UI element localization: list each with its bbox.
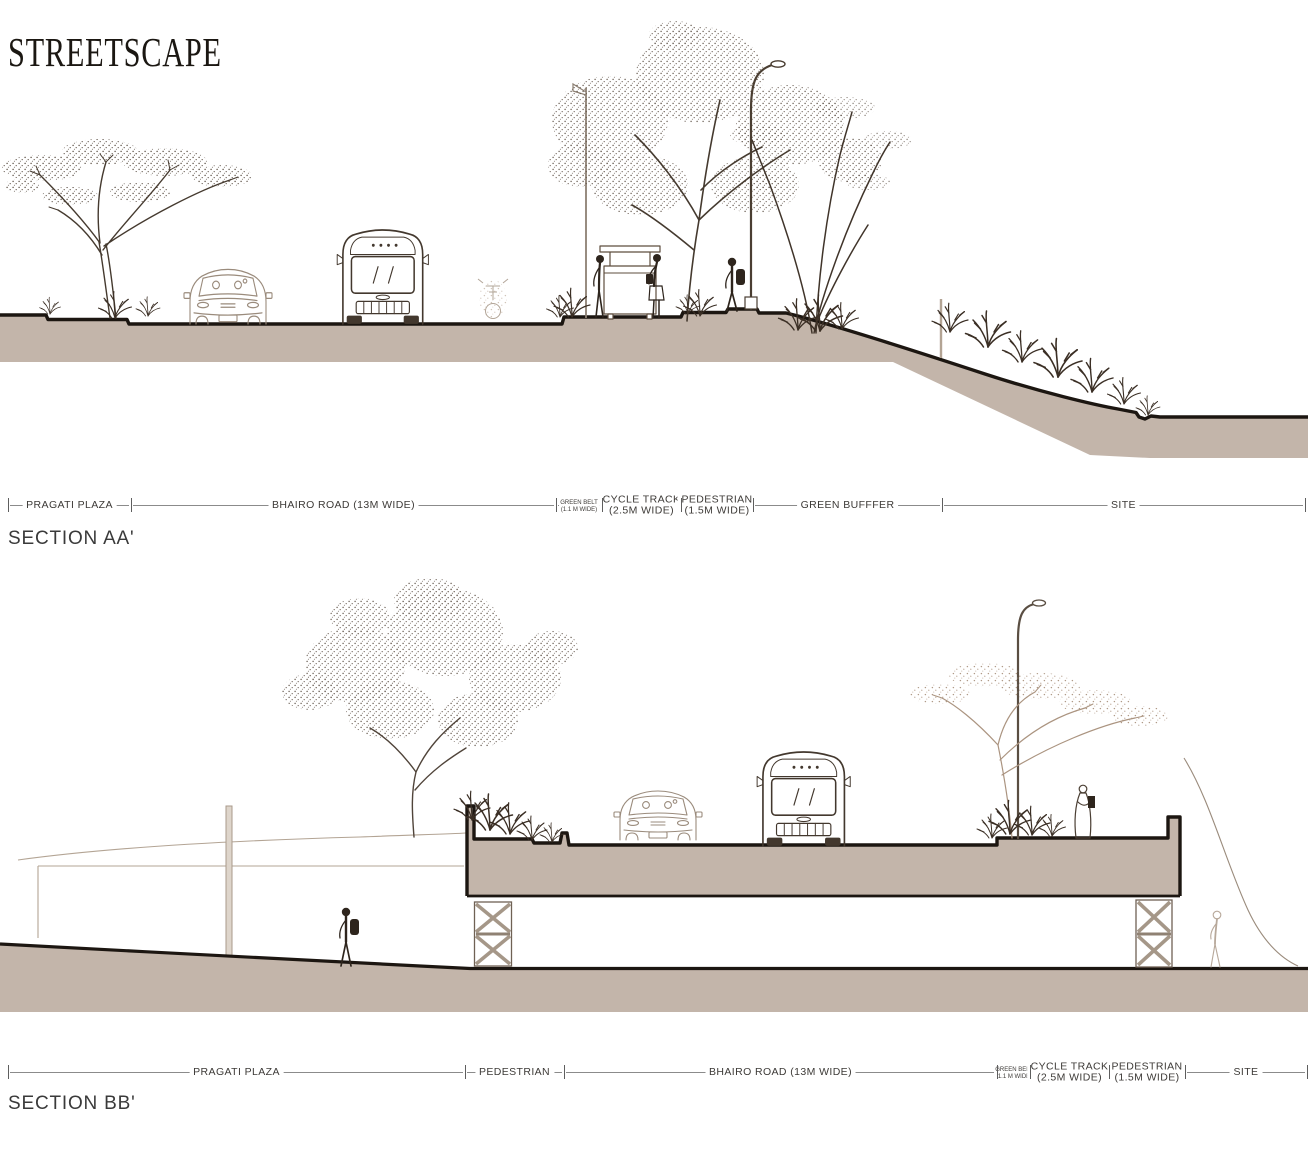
- section-bb-heading: SECTION BB': [8, 1093, 136, 1115]
- acacia-tree-icon: [2, 139, 252, 318]
- light-acacia-tree-icon: [910, 663, 1168, 838]
- background-plaza-lines: [18, 833, 466, 938]
- deck-shrubs: [454, 791, 1066, 842]
- truck-icon: [757, 752, 850, 846]
- pedestrian-figure: [594, 255, 604, 317]
- streetscape-drawing: [0, 0, 1308, 1149]
- car-icon: [184, 269, 272, 324]
- faint-pedestrian-figure: [1211, 911, 1221, 967]
- deck-fill: [467, 806, 1180, 896]
- leafy-tree-icon: [282, 578, 578, 837]
- bus-icon: [337, 230, 428, 324]
- aa-ground-fill: [0, 309, 1308, 458]
- curved-street-lamp-icon: [1018, 600, 1046, 838]
- truss-column-icon: [1136, 900, 1172, 967]
- elevated-road-deck: [467, 806, 1180, 896]
- section-bb-drawing: [0, 578, 1308, 1012]
- motorcycle-icon: [478, 279, 508, 319]
- pedestrian-backpack-figure: [340, 908, 359, 966]
- robed-pedestrian-figure: [1075, 785, 1095, 838]
- streetscape-sheet: STREETSCAPE: [0, 0, 1308, 1149]
- truss-column-icon: [475, 902, 512, 966]
- section-aa-drawing: [0, 21, 1308, 458]
- car-icon: [614, 791, 702, 840]
- section-aa-heading: SECTION AA': [8, 528, 134, 550]
- site-slope-line: [1184, 758, 1298, 966]
- pole-icon: [226, 806, 232, 958]
- pedestrian-backpack-figure: [726, 258, 745, 311]
